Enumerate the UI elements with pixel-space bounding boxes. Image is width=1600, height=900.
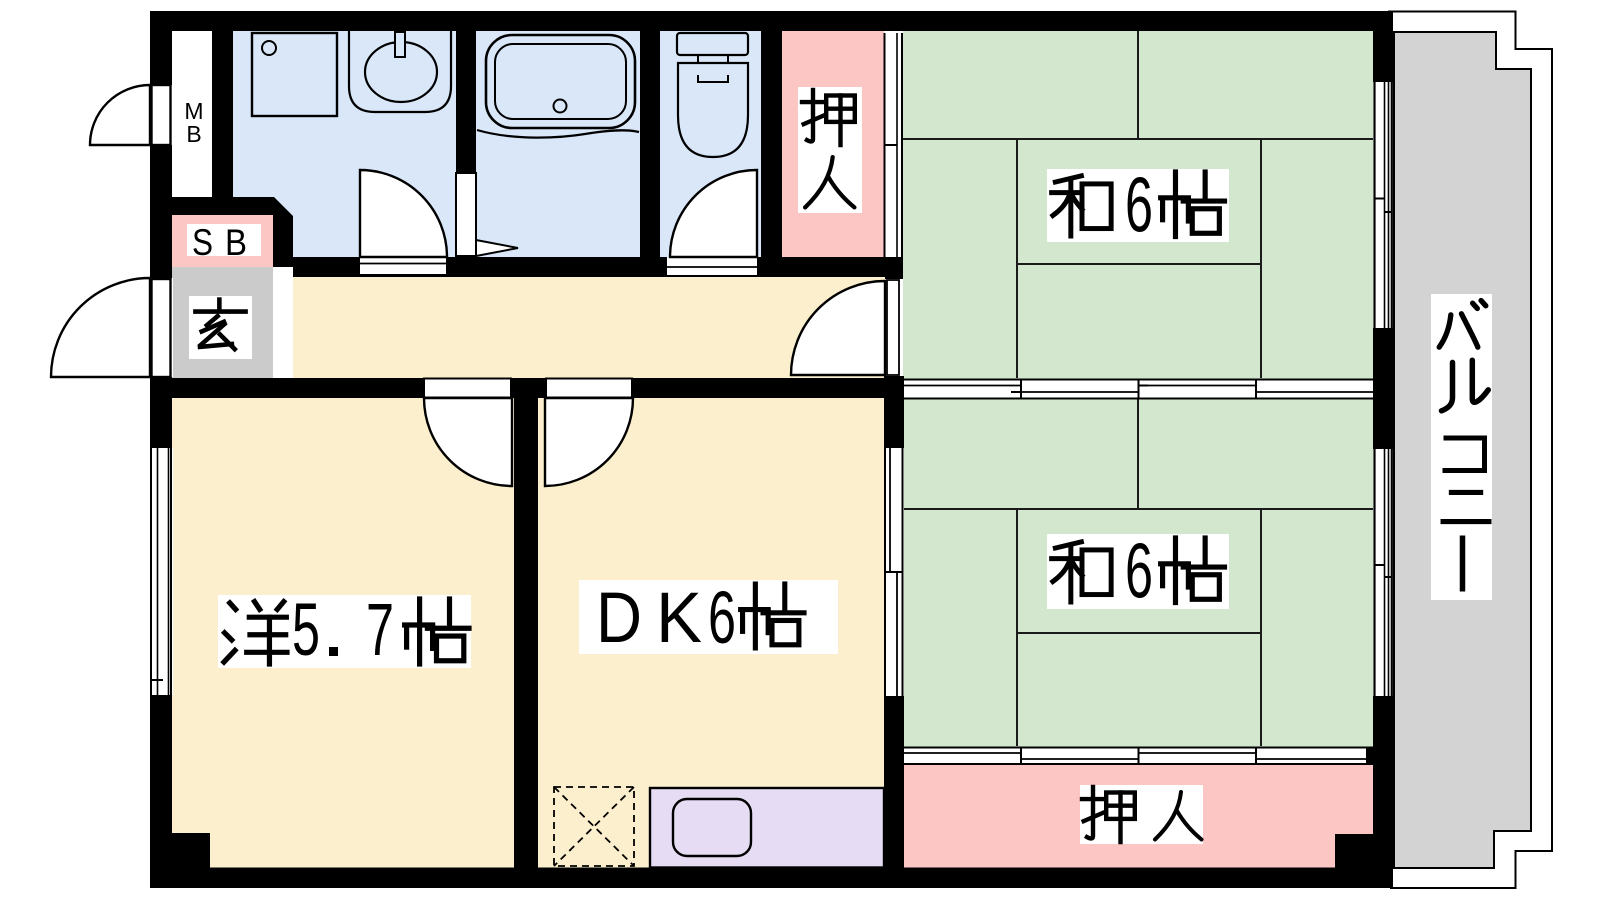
svg-text:7: 7 (366, 588, 394, 671)
svg-text:B: B (225, 222, 247, 263)
svg-text:6: 6 (708, 576, 736, 659)
svg-text:B: B (186, 121, 201, 147)
svg-text:6: 6 (1125, 160, 1153, 248)
svg-text:D: D (596, 579, 642, 658)
svg-text:6: 6 (1125, 526, 1153, 614)
svg-text:5: 5 (292, 588, 320, 671)
svg-text:S: S (192, 222, 213, 263)
svg-text:K: K (656, 579, 702, 658)
